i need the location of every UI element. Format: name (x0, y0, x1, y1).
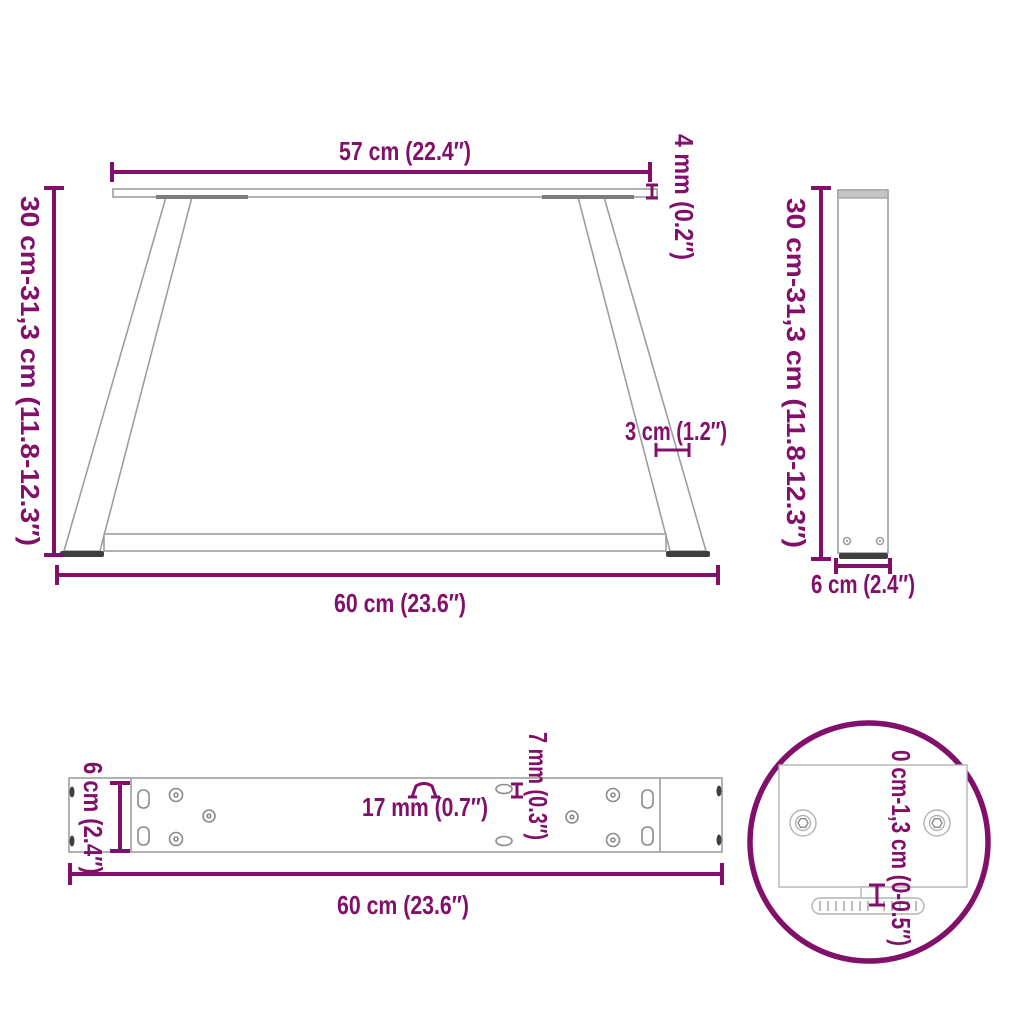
front-left-bracket (156, 195, 248, 199)
front-left-leg (64, 197, 192, 551)
side-leg-body (838, 190, 888, 553)
slot-hole (642, 827, 653, 845)
detail-screw (924, 810, 950, 836)
detail-screw (790, 810, 816, 836)
side-depth-label: 6 cm (2.4″) (811, 569, 915, 599)
front-leg-width-dimension: 3 cm (1.2″) (625, 416, 727, 457)
side-top-cap (838, 190, 888, 198)
front-top-width-dimension: 57 cm (22.4″) (112, 136, 650, 182)
front-view: 57 cm (22.4″) 4 mm (0.2″) 30 cm-31,3 cm … (15, 134, 727, 618)
side-height-label: 30 cm-31,3 cm (11.8-12.3″) (781, 198, 811, 548)
plate-width-label: 60 cm (23.6″) (337, 890, 469, 920)
slot-hole (138, 790, 149, 808)
front-left-foot (60, 551, 104, 557)
slot-hole (138, 827, 149, 845)
front-plate-thickness-label: 4 mm (0.2″) (669, 134, 699, 260)
edge-hole (70, 836, 75, 847)
oval-hole (496, 837, 512, 846)
plate-top-view: 17 mm (0.7″) 7 mm (0.3″) 6 cm (2.4″) 60 … (69, 732, 722, 920)
front-right-foot (666, 551, 710, 557)
diagram-canvas: 57 cm (22.4″) 4 mm (0.2″) 30 cm-31,3 cm … (0, 0, 1024, 1024)
front-leg-width-label: 3 cm (1.2″) (625, 416, 727, 446)
side-screw-dot (879, 540, 881, 542)
front-bottom-width-dimension: 60 cm (23.6″) (57, 565, 718, 618)
front-bottom-stretcher (104, 534, 666, 551)
plate-width-dimension: 60 cm (23.6″) (70, 863, 722, 920)
edge-hole (717, 786, 722, 797)
detail-view: 0 cm-1,3 cm (0-0.5″) (750, 723, 988, 961)
side-depth-dimension: 6 cm (2.4″) (811, 558, 915, 599)
slot-hole (642, 790, 653, 808)
front-height-dimension: 30 cm-31,3 cm (11.8-12.3″) (15, 188, 64, 555)
front-right-bracket (542, 195, 634, 199)
detail-adjust-range-label: 0 cm-1,3 cm (0-0.5″) (886, 750, 916, 946)
edge-hole (70, 787, 75, 798)
side-screw-dot (846, 540, 848, 542)
edge-hole (717, 835, 722, 846)
front-top-width-label: 57 cm (22.4″) (339, 136, 471, 166)
oval-hole (496, 785, 512, 794)
front-plate-thickness-dimension: 4 mm (0.2″) (646, 134, 699, 260)
side-height-dimension: 30 cm-31,3 cm (11.8-12.3″) (781, 188, 831, 559)
plate-hole-width-label: 7 mm (0.3″) (523, 732, 553, 840)
front-bottom-width-label: 60 cm (23.6″) (334, 588, 466, 618)
front-height-label: 30 cm-31,3 cm (11.8-12.3″) (15, 196, 45, 546)
side-view: 30 cm-31,3 cm (11.8-12.3″) 6 cm (2.4″) (781, 188, 915, 599)
plate-depth-label: 6 cm (2.4″) (78, 762, 108, 874)
plate-slot-width-label: 17 mm (0.7″) (362, 792, 488, 822)
dimension-diagram-svg: 57 cm (22.4″) 4 mm (0.2″) 30 cm-31,3 cm … (0, 0, 1024, 1024)
side-foot (839, 553, 888, 559)
